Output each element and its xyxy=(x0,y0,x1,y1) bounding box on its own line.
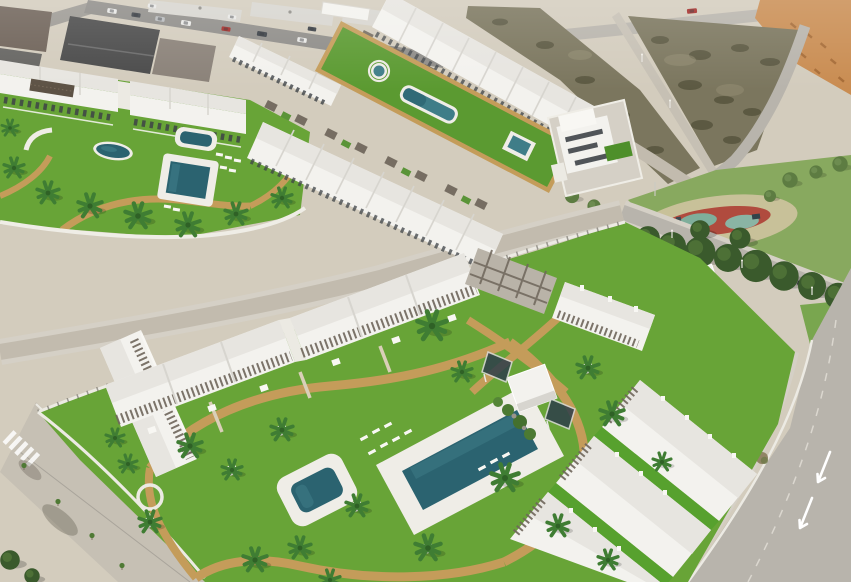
aerial-development-render xyxy=(0,0,851,582)
play-structure xyxy=(752,214,761,220)
distance-haze xyxy=(0,0,851,90)
chimney xyxy=(608,296,612,302)
chimney xyxy=(634,306,638,312)
render-canvas xyxy=(0,0,851,582)
square-pool xyxy=(157,153,220,207)
chimney xyxy=(580,285,584,291)
